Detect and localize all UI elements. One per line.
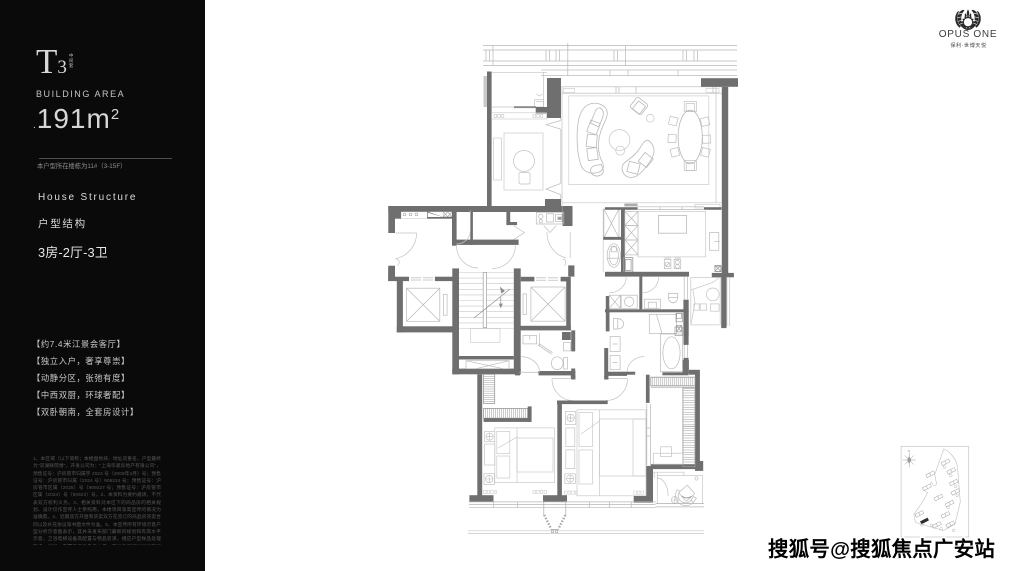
svg-text:保利·世博天悦: 保利·世博天悦: [950, 41, 986, 49]
svg-text:搜狐号@搜狐焦点广安站: 搜狐号@搜狐焦点广安站: [768, 537, 995, 561]
svg-text:OPUS ONE: OPUS ONE: [939, 29, 997, 40]
svg-text:N: N: [908, 450, 910, 453]
